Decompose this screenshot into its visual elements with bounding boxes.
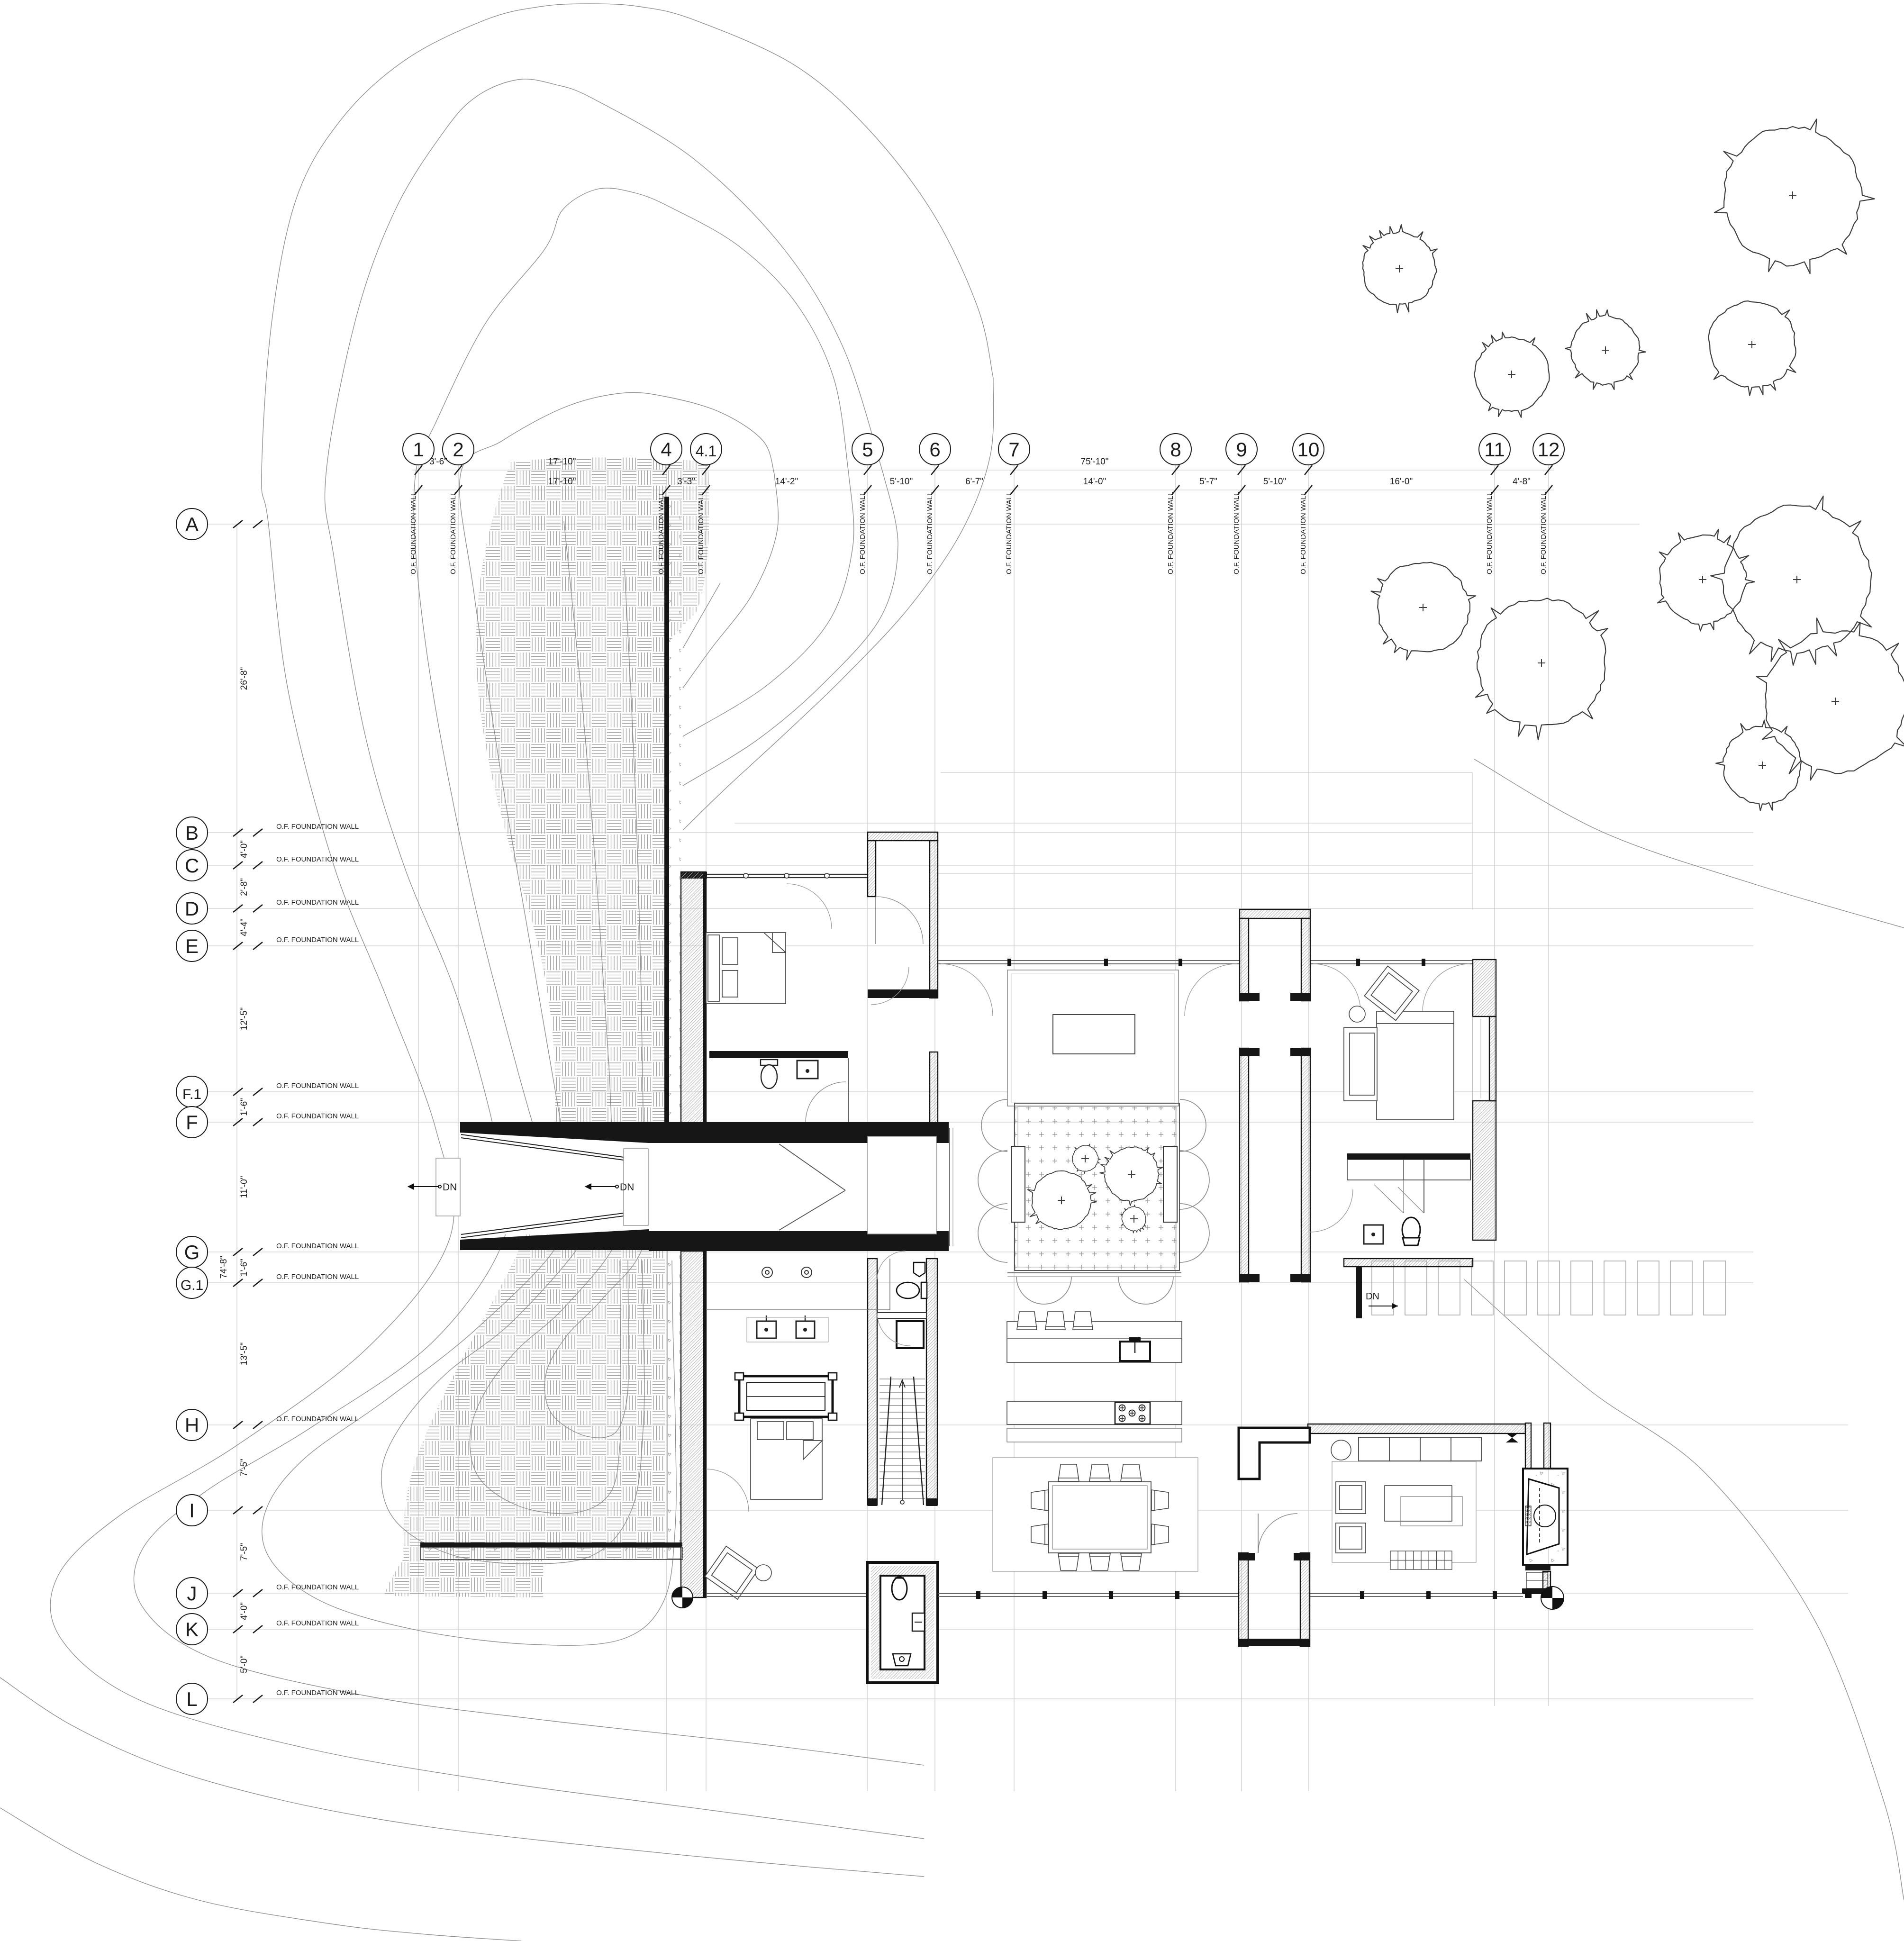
svg-text:5'-7": 5'-7": [1199, 477, 1217, 487]
svg-text:17'-10": 17'-10": [548, 477, 576, 487]
svg-text:A: A: [185, 513, 199, 535]
svg-text:O.F. FOUNDATION WALL: O.F. FOUNDATION WALL: [276, 855, 359, 863]
svg-text:J: J: [187, 1582, 197, 1605]
svg-text:O.F. FOUNDATION WALL: O.F. FOUNDATION WALL: [1299, 492, 1307, 574]
svg-text:O.F. FOUNDATION WALL: O.F. FOUNDATION WALL: [1167, 492, 1175, 574]
svg-text:K: K: [185, 1618, 199, 1641]
svg-text:C: C: [185, 854, 199, 877]
svg-text:3'-3": 3'-3": [677, 477, 695, 487]
svg-text:1: 1: [413, 438, 424, 461]
svg-text:9: 9: [1236, 438, 1247, 461]
svg-text:F.1: F.1: [182, 1087, 201, 1102]
svg-text:G.1: G.1: [181, 1278, 203, 1293]
svg-text:DN: DN: [1366, 1291, 1379, 1302]
svg-text:4.1: 4.1: [696, 443, 716, 460]
svg-text:L: L: [186, 1688, 197, 1710]
svg-text:74'-8": 74'-8": [219, 1256, 229, 1279]
svg-text:26'-8": 26'-8": [239, 667, 249, 690]
svg-text:14'-0": 14'-0": [1083, 477, 1106, 487]
svg-text:11'-0": 11'-0": [239, 1176, 249, 1198]
svg-text:75'-10": 75'-10": [1081, 457, 1109, 467]
svg-text:8: 8: [1170, 438, 1181, 461]
svg-text:O.F. FOUNDATION WALL: O.F. FOUNDATION WALL: [276, 1689, 359, 1697]
svg-text:12: 12: [1538, 438, 1560, 461]
svg-text:11: 11: [1484, 438, 1505, 461]
svg-text:O.F. FOUNDATION WALL: O.F. FOUNDATION WALL: [1005, 492, 1013, 574]
svg-text:DN: DN: [620, 1182, 634, 1193]
svg-text:O.F. FOUNDATION WALL: O.F. FOUNDATION WALL: [859, 492, 867, 574]
svg-text:7'-5": 7'-5": [239, 1459, 249, 1477]
svg-text:O.F. FOUNDATION WALL: O.F. FOUNDATION WALL: [276, 1619, 359, 1627]
svg-text:I: I: [189, 1499, 195, 1522]
svg-text:O.F. FOUNDATION WALL: O.F. FOUNDATION WALL: [1486, 492, 1494, 574]
svg-text:O.F. FOUNDATION WALL: O.F. FOUNDATION WALL: [449, 492, 457, 574]
svg-text:4'-8": 4'-8": [1513, 477, 1531, 487]
svg-text:5: 5: [862, 438, 873, 461]
svg-text:1'-6": 1'-6": [239, 1259, 249, 1277]
svg-text:7: 7: [1008, 438, 1019, 461]
svg-text:O.F. FOUNDATION WALL: O.F. FOUNDATION WALL: [276, 1415, 359, 1423]
svg-text:17'-10": 17'-10": [548, 457, 576, 467]
svg-text:H: H: [185, 1414, 199, 1436]
svg-text:5'-10": 5'-10": [1263, 477, 1286, 487]
svg-text:O.F. FOUNDATION WALL: O.F. FOUNDATION WALL: [657, 492, 665, 574]
svg-text:14'-2": 14'-2": [775, 477, 798, 487]
svg-text:5'-0": 5'-0": [239, 1655, 249, 1673]
svg-text:E: E: [185, 935, 199, 957]
svg-text:16'-0": 16'-0": [1390, 477, 1413, 487]
svg-text:O.F. FOUNDATION WALL: O.F. FOUNDATION WALL: [276, 1082, 359, 1090]
svg-text:B: B: [185, 822, 199, 844]
svg-text:2'-8": 2'-8": [239, 878, 249, 896]
svg-text:5'-10": 5'-10": [890, 477, 913, 487]
svg-text:1'-6": 1'-6": [239, 1098, 249, 1116]
svg-text:4: 4: [661, 438, 671, 461]
svg-text:12'-5": 12'-5": [239, 1007, 249, 1030]
svg-text:10: 10: [1297, 438, 1320, 461]
svg-text:O.F. FOUNDATION WALL: O.F. FOUNDATION WALL: [276, 936, 359, 944]
svg-text:13'-5": 13'-5": [239, 1342, 249, 1365]
svg-text:O.F. FOUNDATION WALL: O.F. FOUNDATION WALL: [276, 823, 359, 831]
svg-text:O.F. FOUNDATION WALL: O.F. FOUNDATION WALL: [1233, 492, 1241, 574]
svg-text:4'-0": 4'-0": [239, 840, 249, 858]
svg-text:F: F: [186, 1111, 198, 1134]
svg-text:4'-0": 4'-0": [239, 1602, 249, 1620]
svg-text:7'-5": 7'-5": [239, 1543, 249, 1561]
svg-text:6'-7": 6'-7": [965, 477, 983, 487]
svg-text:O.F. FOUNDATION WALL: O.F. FOUNDATION WALL: [276, 1273, 359, 1281]
svg-text:DN: DN: [443, 1182, 457, 1193]
svg-text:G: G: [184, 1241, 200, 1263]
svg-text:6: 6: [929, 438, 940, 461]
svg-text:O.F. FOUNDATION WALL: O.F. FOUNDATION WALL: [276, 1583, 359, 1591]
svg-text:D: D: [185, 898, 199, 920]
svg-text:O.F. FOUNDATION WALL: O.F. FOUNDATION WALL: [409, 492, 417, 574]
svg-text:3'-6": 3'-6": [429, 457, 447, 467]
svg-text:O.F. FOUNDATION WALL: O.F. FOUNDATION WALL: [276, 1112, 359, 1120]
svg-text:O.F. FOUNDATION WALL: O.F. FOUNDATION WALL: [926, 492, 934, 574]
svg-text:O.F. FOUNDATION WALL: O.F. FOUNDATION WALL: [1540, 492, 1548, 574]
svg-text:2: 2: [453, 438, 463, 461]
svg-text:O.F. FOUNDATION WALL: O.F. FOUNDATION WALL: [276, 1242, 359, 1250]
svg-text:O.F. FOUNDATION WALL: O.F. FOUNDATION WALL: [697, 492, 705, 574]
svg-text:O.F. FOUNDATION WALL: O.F. FOUNDATION WALL: [276, 898, 359, 907]
svg-text:4'-4": 4'-4": [239, 918, 249, 936]
